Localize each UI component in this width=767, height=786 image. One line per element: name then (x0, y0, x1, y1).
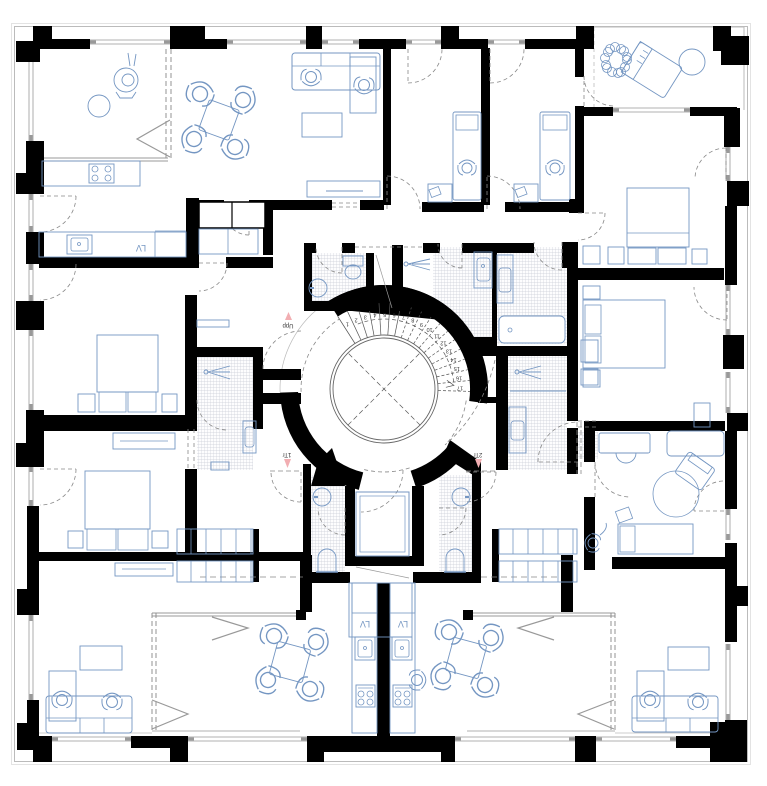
svg-text:4: 4 (373, 312, 376, 318)
svg-text:2Tr: 2Tr (474, 451, 483, 457)
svg-text:17: 17 (457, 384, 463, 390)
svg-text:LV: LV (136, 243, 146, 253)
svg-text:11: 11 (434, 333, 440, 339)
svg-text:LV: LV (398, 619, 408, 629)
svg-text:8: 8 (411, 317, 414, 323)
svg-text:5: 5 (383, 311, 386, 317)
svg-text:LV: LV (360, 619, 370, 629)
svg-text:16: 16 (456, 375, 462, 381)
svg-text:15: 15 (454, 365, 460, 371)
svg-text:1Tr: 1Tr (283, 451, 292, 457)
svg-text:3: 3 (364, 313, 367, 319)
svg-text:2: 2 (355, 316, 358, 322)
svg-text:9: 9 (420, 321, 423, 327)
svg-text:14: 14 (450, 356, 456, 362)
svg-text:10: 10 (427, 326, 433, 332)
svg-text:Upp: Upp (282, 322, 294, 328)
svg-text:6: 6 (393, 312, 396, 318)
svg-text:13: 13 (446, 348, 452, 354)
svg-text:7: 7 (402, 314, 405, 320)
svg-text:12: 12 (440, 340, 446, 346)
svg-text:1: 1 (346, 320, 349, 326)
